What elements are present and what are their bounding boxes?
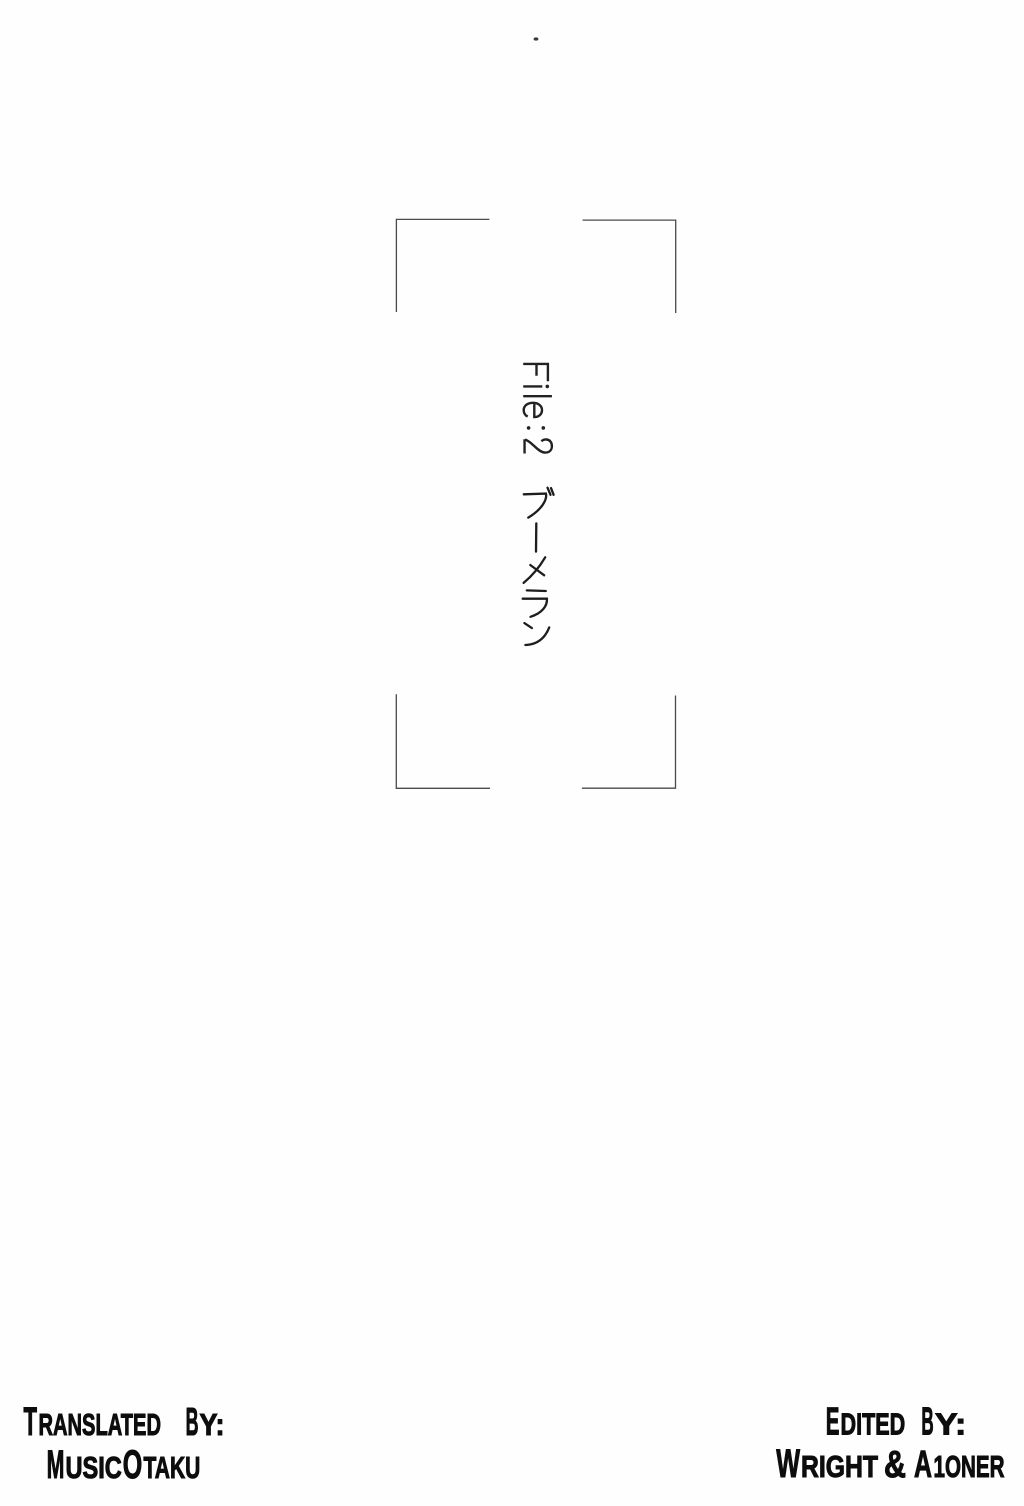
svg-text:A: A: [914, 1444, 932, 1486]
svg-text:DITED: DITED: [841, 1407, 906, 1442]
svg-text:O: O: [123, 1443, 143, 1487]
svg-text:&: &: [884, 1444, 906, 1486]
svg-text:TAKU: TAKU: [144, 1450, 201, 1485]
svg-text:USIC: USIC: [66, 1450, 122, 1485]
svg-text:E: E: [826, 1401, 840, 1444]
svg-text:W: W: [776, 1442, 800, 1486]
svg-text:B: B: [921, 1401, 933, 1444]
svg-text:Y:: Y:: [200, 1407, 225, 1442]
svg-text:T: T: [24, 1400, 38, 1444]
svg-text:1ONER: 1ONER: [934, 1449, 1005, 1484]
svg-text:RANSLATED: RANSLATED: [39, 1407, 162, 1442]
svg-text:B: B: [186, 1401, 199, 1444]
svg-text:M: M: [47, 1443, 65, 1487]
svg-text:RIGHT: RIGHT: [801, 1449, 878, 1484]
svg-text:Y:: Y:: [935, 1407, 966, 1442]
